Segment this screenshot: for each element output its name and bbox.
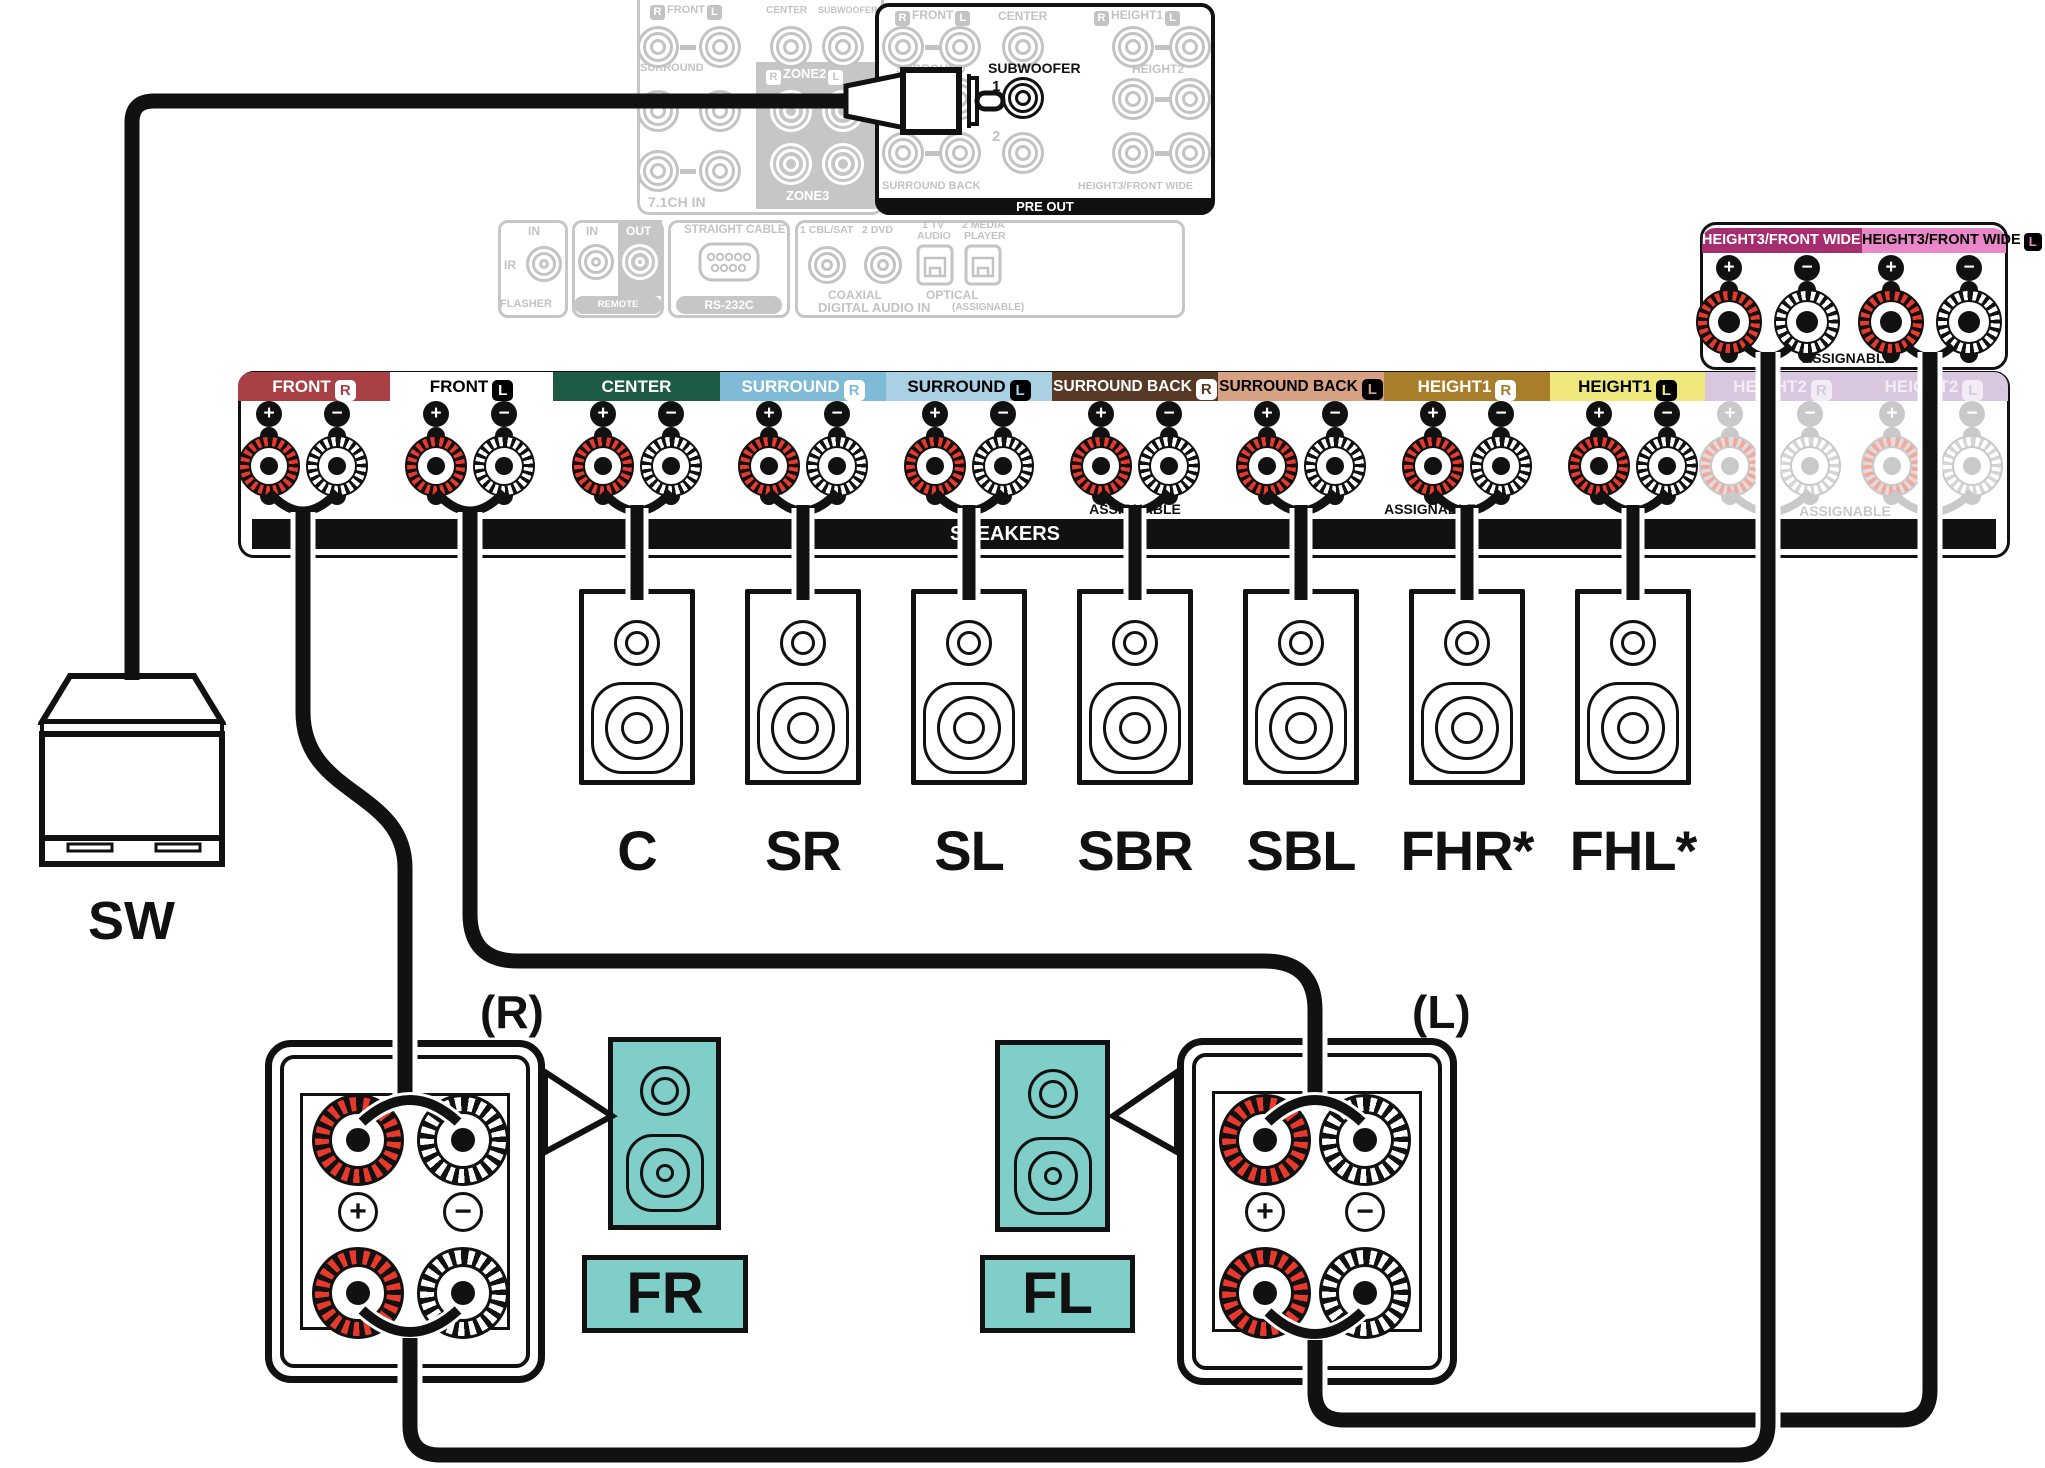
subwoofer-1-jack — [1002, 77, 1044, 119]
r-icon: R — [895, 11, 910, 26]
l-icon: L — [1165, 11, 1180, 26]
plus-post-hf — [312, 1094, 404, 1186]
surround-r-terminals: +− — [738, 401, 868, 505]
tv-audio-label-2: AUDIO — [917, 230, 951, 242]
woofer — [591, 682, 683, 774]
rca-jack — [939, 78, 981, 120]
pre-out-caption: PRE OUT — [879, 198, 1211, 215]
coaxial-jack — [808, 246, 846, 284]
left-channel-caption: (L) — [1412, 985, 1471, 1039]
surround-r-speaker — [745, 589, 861, 785]
l-icon: L — [1362, 379, 1383, 400]
tweeter — [1028, 1069, 1078, 1119]
channel-height1-r: HEIGHT1R — [1384, 372, 1550, 401]
height1-l-terminals: +− — [1568, 401, 1698, 505]
l-icon: L — [2024, 233, 2042, 251]
db9-connector-icon — [698, 242, 760, 282]
r-icon: R — [1094, 11, 1109, 26]
minus-post-hf — [1319, 1094, 1411, 1186]
jack-link — [680, 45, 696, 50]
plus-binding-post — [238, 435, 300, 497]
minus-binding-post — [1941, 435, 2003, 497]
jack-link — [925, 151, 941, 156]
polarity-badge: + — [1088, 401, 1114, 427]
remote-out-label: OUT — [626, 224, 651, 238]
rca-jack — [637, 150, 679, 192]
preout-height1-label: RHEIGHT1L — [1092, 8, 1182, 26]
plus-binding-post — [1699, 435, 1761, 497]
rca-jack — [770, 26, 812, 68]
channel-height1-l: HEIGHT1L — [1550, 372, 1705, 401]
cblsat-label: 1 CBL/SAT — [800, 224, 853, 236]
subwoofer-2-number: 2 — [992, 128, 1000, 145]
tweeter — [614, 620, 660, 666]
preout-center-label: CENTER — [998, 9, 1047, 23]
right-channel-caption: (R) — [480, 985, 544, 1039]
minus-binding-post — [806, 435, 868, 497]
optical-caption: OPTICAL — [926, 288, 979, 302]
rca-jack — [1002, 132, 1044, 174]
surround-back-r-speaker — [1077, 589, 1193, 785]
height1-r-terminals: +− — [1402, 401, 1532, 505]
ir-jack — [526, 246, 562, 282]
straight-cable-label: STRAIGHT CABLE — [684, 224, 786, 236]
panel71-subwoofer-label: SUBWOOFER — [818, 5, 878, 15]
r-icon: R — [844, 380, 865, 401]
channel-surround-r: SURROUNDR — [720, 372, 886, 401]
center-speaker-label: C — [552, 818, 722, 883]
polarity-badge: − — [1654, 401, 1680, 427]
polarity-badge: − — [1322, 401, 1348, 427]
jack-link — [1155, 97, 1171, 102]
rca-jack — [1169, 78, 1211, 120]
remote-out-jack — [622, 244, 658, 280]
rca-jack — [1169, 132, 1211, 174]
r-icon: R — [1196, 379, 1217, 400]
height2-r-terminals: +− — [1699, 401, 1841, 505]
remote-caption: REMOTE CONTROL — [574, 296, 662, 314]
rca-jack — [1112, 78, 1154, 120]
polarity-badge: + — [590, 401, 616, 427]
polarity-badge: − — [1156, 401, 1182, 427]
plus-binding-post — [1236, 435, 1298, 497]
polarity-badge: − — [990, 401, 1016, 427]
front-r-tag: FR — [582, 1255, 748, 1333]
surround-back-l-terminals: +− — [1236, 401, 1366, 505]
rca-jack — [822, 26, 864, 68]
minus-symbol: − — [1345, 1192, 1385, 1232]
channel-surround-back-l: SURROUND BACKL — [1218, 372, 1384, 401]
polarity-badge: − — [824, 401, 850, 427]
plus-binding-post — [738, 435, 800, 497]
surround-l-terminals: +− — [904, 401, 1034, 505]
height3-l-label: HEIGHT3/FRONT WIDEL — [1862, 228, 2006, 253]
plus-binding-post — [1861, 435, 1923, 497]
flasher-ir-label: IR — [504, 258, 516, 272]
l-icon: L — [492, 380, 513, 401]
rca-jack — [882, 132, 924, 174]
channel-center: CENTER — [553, 372, 720, 401]
coaxial-jack — [864, 246, 902, 284]
l-icon: L — [1010, 380, 1031, 401]
plus-binding-post — [1568, 435, 1630, 497]
front-r-speaker — [608, 1037, 721, 1230]
front-l-speaker — [995, 1040, 1110, 1232]
rca-jack — [822, 90, 864, 132]
front-r-terminals: +− — [238, 401, 368, 505]
minus-post-lf — [417, 1247, 509, 1339]
media-player-label-2: PLAYER — [964, 230, 1006, 242]
speakers-bar-label: SPEAKERS — [920, 523, 1090, 546]
height2-l-terminals: +− — [1861, 401, 2003, 505]
polarity-badge: − — [324, 401, 350, 427]
surround-back-l-speaker-label: SBL — [1216, 818, 1386, 883]
plus-post-lf — [312, 1247, 404, 1339]
front-height-r-speaker — [1409, 589, 1525, 785]
polarity-badge: + — [1717, 401, 1743, 427]
rca-jack — [882, 78, 924, 120]
l-icon: L — [828, 70, 843, 85]
l-icon: L — [1656, 380, 1677, 401]
preout-subwoofer-label: SUBWOOFER — [988, 60, 1081, 76]
panel71-front-label: RFRONTL — [648, 4, 724, 20]
channel-front-l: FRONTL — [390, 372, 553, 401]
polarity-badge: + — [1420, 401, 1446, 427]
plus-symbol: + — [338, 1192, 378, 1232]
plus-post-hf — [1219, 1094, 1311, 1186]
r-icon: R — [1495, 380, 1516, 401]
height3-r-terminals: +− — [1696, 255, 1840, 359]
jack-link — [925, 45, 941, 50]
polarity-badge: + — [922, 401, 948, 427]
preout-surround-label: SURROUND — [896, 62, 965, 76]
rca-jack — [699, 150, 741, 192]
dvd-label: 2 DVD — [862, 224, 893, 236]
l-icon: L — [707, 5, 722, 20]
rca-jack — [699, 90, 741, 132]
plus-binding-post — [1070, 435, 1132, 497]
rca-jack — [1112, 132, 1154, 174]
polarity-badge: + — [1254, 401, 1280, 427]
zone3-label: ZONE3 — [786, 188, 829, 203]
l-icon: L — [1962, 380, 1983, 401]
front-l-terminals: +− — [405, 401, 535, 505]
minus-symbol: − — [443, 1192, 483, 1232]
l-icon: L — [955, 11, 970, 26]
tweeter — [640, 1066, 690, 1116]
channel-front-r: FRONTR — [238, 372, 390, 401]
minus-binding-post — [306, 435, 368, 497]
surround-r-speaker-label: SR — [718, 818, 888, 883]
channel-height2-l: HEIGHT2L — [1860, 372, 2008, 401]
zone2-label: RZONE2L — [764, 66, 845, 85]
jack-link — [1155, 151, 1171, 156]
jack-link — [1155, 45, 1171, 50]
polarity-badge: − — [1794, 255, 1820, 281]
rca-jack — [637, 90, 679, 132]
preout-surround-back-label: SURROUND BACK — [882, 180, 980, 192]
preout-front-label: RFRONTL — [893, 8, 972, 26]
minus-binding-post — [473, 435, 535, 497]
assignable-label-grayed: ASSIGNABLE — [1765, 503, 1925, 519]
minus-binding-post — [1636, 435, 1698, 497]
polarity-badge: + — [256, 401, 282, 427]
polarity-badge: − — [1956, 255, 1982, 281]
subwoofer-box — [38, 672, 226, 870]
rca-jack — [939, 132, 981, 174]
minus-binding-post — [1470, 435, 1532, 497]
plus-binding-post — [904, 435, 966, 497]
front-height-r-speaker-label: FHR* — [1382, 818, 1552, 883]
subwoofer-label: SW — [88, 890, 175, 952]
polarity-badge: − — [1488, 401, 1514, 427]
polarity-badge: − — [1959, 401, 1985, 427]
surround-back-l-speaker — [1243, 589, 1359, 785]
digital-audio-caption: DIGITAL AUDIO IN — [818, 300, 930, 315]
polarity-badge: + — [1878, 255, 1904, 281]
polarity-badge: + — [423, 401, 449, 427]
front-height-l-speaker — [1575, 589, 1691, 785]
rca-jack — [770, 90, 812, 132]
callout-to-fl-speaker — [1113, 1072, 1177, 1152]
r-icon: R — [650, 5, 665, 20]
optical-jacks-icon — [916, 244, 1002, 286]
polarity-badge: + — [1586, 401, 1612, 427]
center-terminals: +− — [572, 401, 702, 505]
surround-l-speaker-label: SL — [884, 818, 1054, 883]
minus-binding-post — [1779, 435, 1841, 497]
center-speaker — [579, 589, 695, 785]
polarity-badge: − — [658, 401, 684, 427]
plus-binding-post — [1402, 435, 1464, 497]
rca-jack — [770, 143, 812, 185]
plus-binding-post — [405, 435, 467, 497]
subwoofer-1-number: 1 — [992, 78, 1000, 95]
plus-post-lf — [1219, 1247, 1311, 1339]
polarity-badge: − — [1797, 401, 1823, 427]
minus-binding-post — [1774, 289, 1840, 355]
plus-binding-post — [1696, 289, 1762, 355]
height3-l-terminals: +− — [1858, 255, 2002, 359]
digital-audio-assignable: (ASSIGNABLE) — [952, 302, 1024, 313]
plus-symbol: + — [1245, 1192, 1285, 1232]
surround-back-r-speaker-label: SBR — [1050, 818, 1220, 883]
minus-post-lf — [1319, 1247, 1411, 1339]
rca-jack — [637, 26, 679, 68]
woofer — [1014, 1137, 1092, 1215]
rs232-caption: RS-232C — [676, 296, 782, 314]
woofer — [626, 1134, 704, 1212]
channel-height2-r: HEIGHT2R — [1705, 372, 1860, 401]
rca-jack — [699, 26, 741, 68]
plus-binding-post — [572, 435, 634, 497]
channel-surround-l: SURROUNDL — [886, 372, 1052, 401]
speaker-wiring-diagram: RFRONTL CENTER SUBWOOFER SURROUND RZONE2… — [0, 0, 2045, 1468]
polarity-badge: + — [1879, 401, 1905, 427]
callout-to-fr-speaker — [545, 1072, 612, 1152]
minus-binding-post — [1138, 435, 1200, 497]
front-height-l-speaker-label: FHL* — [1548, 818, 1718, 883]
flasher-in-label: IN — [528, 224, 540, 238]
front-r-speaker-terminal-closeup: + − — [265, 1040, 545, 1383]
minus-binding-post — [1936, 289, 2002, 355]
speakers-bar — [252, 519, 1996, 549]
front-l-speaker-terminal-closeup: + − — [1177, 1038, 1457, 1385]
preout-height3-label: HEIGHT3/FRONT WIDE — [1078, 180, 1193, 192]
minus-binding-post — [1304, 435, 1366, 497]
minus-binding-post — [972, 435, 1034, 497]
r-icon: R — [335, 380, 356, 401]
front-l-tag: FL — [980, 1255, 1135, 1333]
polarity-badge: + — [756, 401, 782, 427]
preout-height2-label: HEIGHT2 — [1132, 62, 1184, 76]
height3-r-label: HEIGHT3/FRONT WIDER — [1702, 228, 1862, 253]
plus-binding-post — [1858, 289, 1924, 355]
surround-back-r-terminals: +− — [1070, 401, 1200, 505]
polarity-badge: − — [491, 401, 517, 427]
rca-jack — [822, 143, 864, 185]
surround-l-speaker — [911, 589, 1027, 785]
panel71-center-label: CENTER — [766, 5, 807, 16]
minus-binding-post — [640, 435, 702, 497]
panel71-caption: 7.1CH IN — [648, 194, 706, 210]
polarity-badge: + — [1716, 255, 1742, 281]
minus-post-hf — [417, 1094, 509, 1186]
r-icon: R — [1811, 380, 1832, 401]
r-icon: R — [766, 70, 781, 85]
channel-surround-back-r: SURROUND BACKR — [1052, 372, 1218, 401]
jack-link — [680, 169, 696, 174]
flasher-caption: FLASHER — [500, 298, 552, 310]
remote-in-label: IN — [586, 224, 598, 238]
remote-in-jack — [578, 244, 614, 280]
